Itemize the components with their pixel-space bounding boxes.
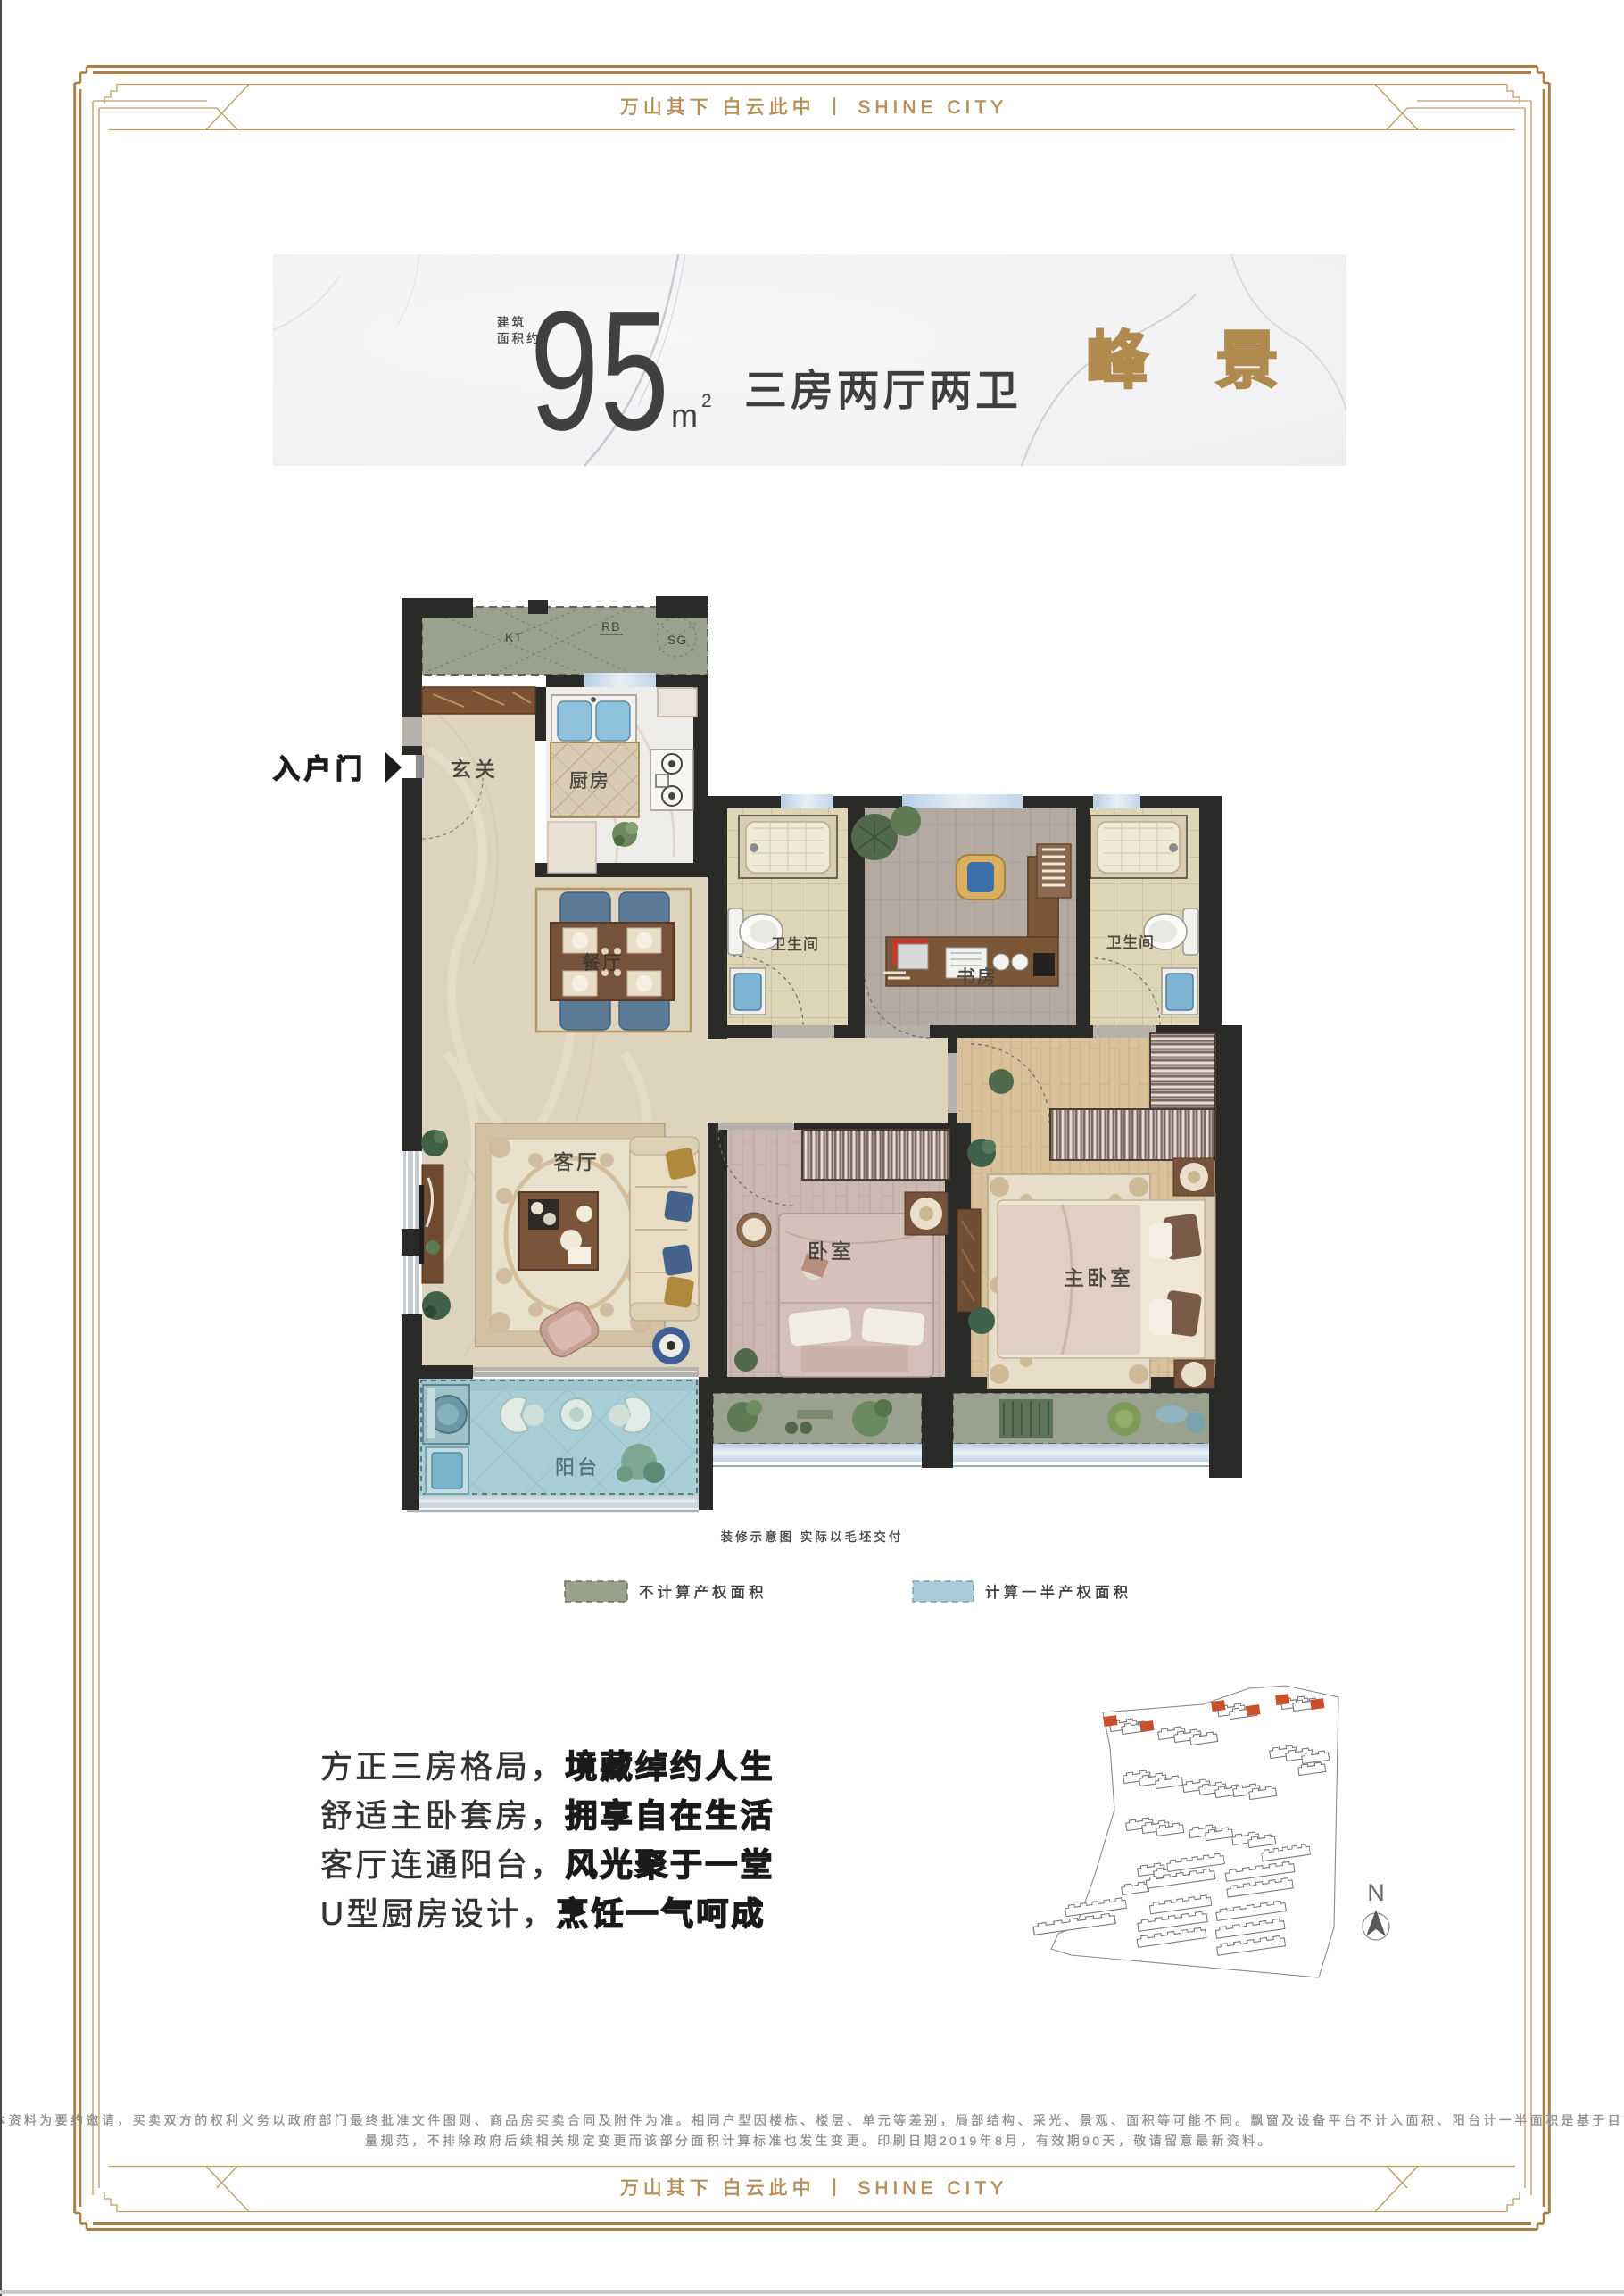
- svg-text:万山其下 白云此中 丨 SHINE CITY: 万山其下 白云此中 丨 SHINE CITY: [620, 2178, 1007, 2199]
- svg-text:卫生间: 卫生间: [1106, 934, 1155, 951]
- svg-text:主卧室: 主卧室: [1064, 1266, 1133, 1289]
- svg-text:N: N: [1367, 1879, 1385, 1906]
- svg-text:方正三房格局，境藏绰约人生: 方正三房格局，境藏绰约人生: [320, 1748, 775, 1785]
- svg-text:95: 95: [530, 277, 670, 466]
- svg-text:量规范，不排除政府后续相关规定变更而该部分面积计算标准也发生: 量规范，不排除政府后续相关规定变更而该部分面积计算标准也发生变更。印刷日期201…: [365, 2134, 1273, 2148]
- svg-text:卧室: 卧室: [808, 1239, 854, 1263]
- svg-text:书房: 书房: [957, 967, 998, 988]
- svg-text:SG: SG: [667, 633, 687, 647]
- svg-text:U型厨房设计，烹饪一气呵成: U型厨房设计，烹饪一气呵成: [320, 1895, 766, 1932]
- svg-text:客厅: 客厅: [553, 1150, 600, 1173]
- svg-text:舒适主卧套房，拥享自在生活: 舒适主卧套房，拥享自在生活: [320, 1797, 775, 1834]
- svg-text:厨房: 厨房: [569, 771, 610, 792]
- svg-text:餐厅: 餐厅: [582, 953, 623, 974]
- svg-text:KT: KT: [505, 630, 523, 644]
- svg-text:阳台: 阳台: [555, 1456, 600, 1479]
- svg-text:计算一半产权面积: 计算一半产权面积: [985, 1584, 1131, 1601]
- svg-text:峰 景: 峰 景: [1086, 326, 1303, 395]
- svg-text:万山其下 白云此中 丨 SHINE CITY: 万山其下 白云此中 丨 SHINE CITY: [620, 97, 1007, 118]
- svg-text:卫生间: 卫生间: [771, 936, 819, 953]
- svg-text:三房两厅两卫: 三房两厅两卫: [744, 368, 1022, 415]
- svg-text:2: 2: [701, 391, 712, 411]
- svg-text:玄关: 玄关: [451, 758, 499, 781]
- svg-text:不计算产权面积: 不计算产权面积: [639, 1584, 767, 1601]
- svg-text:装修示意图 实际以毛坯交付: 装修示意图 实际以毛坯交付: [721, 1529, 904, 1544]
- svg-text:入户门: 入户门: [273, 755, 367, 784]
- svg-text:建筑: 建筑: [497, 316, 526, 329]
- svg-text:客厅连通阳台，风光聚于一堂: 客厅连通阳台，风光聚于一堂: [320, 1846, 775, 1883]
- svg-text:本资料为要约邀请，买卖双方的权利义务以政府部门最终批准文件图: 本资料为要约邀请，买卖双方的权利义务以政府部门最终批准文件图则、商品房买卖合同及…: [0, 2113, 1624, 2127]
- svg-text:m: m: [671, 397, 698, 434]
- svg-text:RB: RB: [601, 619, 620, 634]
